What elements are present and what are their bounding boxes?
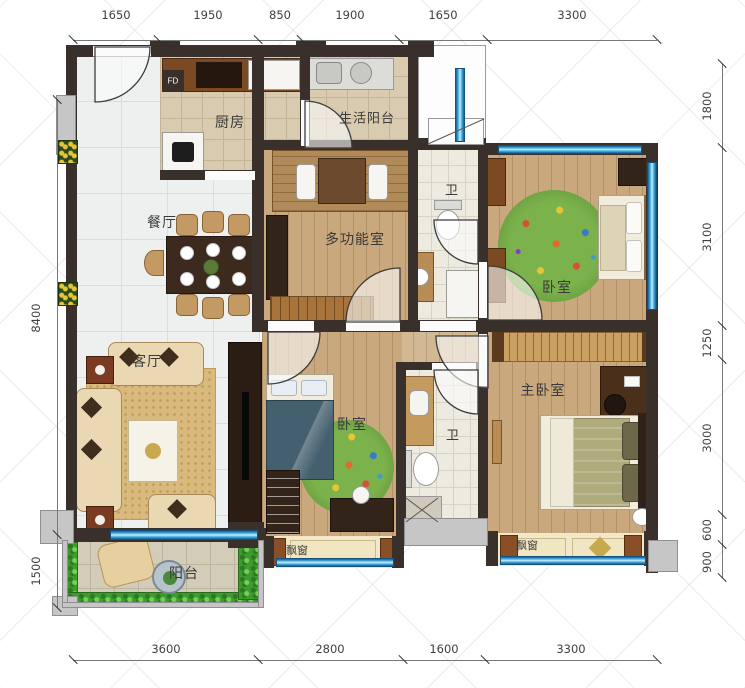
dim-top-6: 3300	[557, 8, 586, 22]
wall-bedroom-mid-right	[396, 362, 406, 536]
bedroom-mid-opening	[268, 321, 314, 331]
ne-bed-blanket	[600, 205, 626, 271]
toilet-bowl-top	[436, 210, 460, 240]
wall-mf-top	[264, 140, 414, 150]
dining-chair-5	[202, 297, 224, 319]
toilet-tank-top	[434, 200, 462, 210]
mid-desk-chair	[352, 486, 370, 504]
sink-basin-right	[350, 62, 372, 84]
label-living: 客厅	[132, 351, 162, 371]
dim-bottom-1: 3600	[151, 642, 180, 656]
master-desk-laptop	[624, 376, 640, 387]
dim-line-right	[722, 64, 723, 578]
dim-bottom-3: 1600	[429, 642, 458, 656]
label-bay-window-left: 飘窗	[286, 542, 308, 558]
master-wardrobe-cap-left	[492, 332, 504, 362]
dim-right-5: 600	[700, 519, 714, 541]
mf-cabinet	[266, 215, 288, 300]
wall-pier-1	[150, 40, 180, 57]
shower-top	[446, 270, 482, 318]
gray-block-se	[648, 540, 678, 572]
dining-chair-3	[228, 214, 250, 236]
label-dining: 餐厅	[147, 212, 177, 232]
mid-pillow-2	[301, 380, 327, 396]
mid-wardrobe	[266, 470, 300, 534]
cushion-right	[368, 164, 388, 200]
dim-line-left	[57, 100, 58, 608]
dim-left-2: 1500	[29, 556, 43, 585]
balcony-rail-left	[62, 540, 68, 608]
dim-line-bottom	[73, 660, 657, 661]
coffee-table-decor	[145, 443, 161, 459]
dim-bottom-4: 3300	[556, 642, 585, 656]
side-table-top-decor	[95, 365, 105, 375]
tea-table	[318, 158, 366, 204]
window-shaft	[455, 68, 465, 142]
dim-top-5: 1650	[428, 8, 457, 22]
label-bath-top: 卫	[445, 180, 459, 199]
label-multifunction: 多功能室	[325, 229, 385, 249]
mid-pillow-1	[271, 380, 297, 396]
label-bedroom-mid: 卧室	[337, 414, 367, 434]
bookshelf	[270, 296, 374, 322]
dining-chair-7	[144, 250, 164, 276]
gray-block-south-mid	[404, 518, 488, 546]
master-door-opening	[479, 334, 487, 386]
side-table-bottom-decor	[95, 515, 105, 525]
label-bay-window-right: 飘窗	[516, 537, 538, 553]
mf-door-opening	[346, 321, 400, 331]
corridor-opening	[420, 321, 476, 331]
balcony-rail-right	[258, 540, 264, 608]
dim-bottom-2: 2800	[315, 642, 344, 656]
window-living-balcony	[110, 530, 258, 540]
plate-2	[206, 243, 220, 257]
ne-door-opening	[479, 262, 487, 318]
master-desk-chair	[604, 394, 626, 416]
dim-top-3: 850	[269, 8, 291, 22]
bath-mid-basin	[409, 390, 429, 416]
wall-mf-right	[408, 148, 418, 332]
bath-mid-door-opening	[432, 363, 476, 370]
plate-6	[232, 272, 246, 286]
entry-opening	[93, 46, 151, 57]
cushion-left	[296, 164, 316, 200]
master-wardrobe	[492, 332, 654, 362]
dining-chair-1	[176, 214, 198, 236]
mid-bed-blanket	[266, 400, 334, 480]
dim-top-1: 1650	[101, 8, 130, 22]
tv-screen	[242, 392, 249, 480]
flower-box-2	[58, 282, 78, 306]
master-bench	[492, 420, 502, 464]
dim-right-1: 1800	[700, 91, 714, 120]
stove	[196, 62, 242, 88]
table-centerpiece	[203, 259, 219, 275]
dim-right-4: 3000	[700, 423, 714, 452]
label-bath-mid: 卫	[446, 425, 460, 444]
dining-chair-2	[202, 211, 224, 233]
label-service-balcony: 生活阳台	[339, 108, 395, 127]
plate-5	[206, 275, 220, 289]
toilet-bowl-mid	[413, 452, 439, 486]
dim-left-1: 8400	[29, 303, 43, 332]
dining-chair-6	[228, 294, 250, 316]
window-bay-left	[276, 558, 394, 567]
dining-chair-4	[176, 294, 198, 316]
ne-pillow-2	[626, 240, 642, 272]
dim-right-6: 900	[700, 551, 714, 573]
ne-pillow-1	[626, 202, 642, 234]
plate-3	[232, 246, 246, 260]
label-fd: FD	[168, 77, 179, 86]
wall-svc-right	[408, 45, 418, 148]
plate-1	[180, 246, 194, 260]
window-bay-right	[500, 556, 646, 565]
balcony-rail-bottom	[62, 602, 264, 608]
balcony-plants-right	[238, 542, 260, 600]
dim-top-4: 1900	[335, 8, 364, 22]
label-balcony: 阳台	[169, 563, 199, 583]
master-bed-sheet-fold	[550, 418, 574, 507]
kitchen-opening	[205, 171, 255, 180]
dim-right-2: 3100	[700, 222, 714, 251]
label-master-bedroom: 主卧室	[521, 380, 566, 400]
sink-basin-left	[316, 62, 342, 84]
floor-plan-canvas: 厨房 生活阳台 餐厅 多功能室 卫 卧室 客厅 卧室 卫 主卧室 阳台 飘窗 飘…	[0, 0, 745, 688]
dim-right-3: 1250	[700, 328, 714, 357]
flower-box-1	[58, 140, 78, 164]
cooktop	[172, 142, 194, 162]
dim-top-2: 1950	[193, 8, 222, 22]
svc-door-opening	[301, 100, 309, 146]
window-ne-top	[498, 145, 642, 154]
plate-4	[180, 272, 194, 286]
window-ne-right	[647, 162, 657, 310]
label-bedroom-ne: 卧室	[542, 277, 572, 297]
label-kitchen: 厨房	[215, 112, 245, 132]
